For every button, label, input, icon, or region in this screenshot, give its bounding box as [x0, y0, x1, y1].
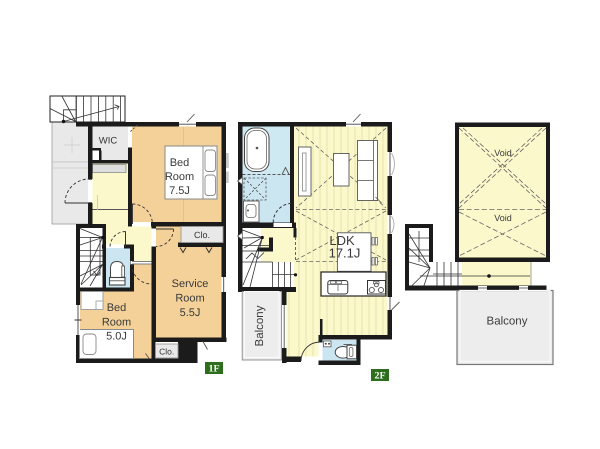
svg-text:Clo.: Clo. [159, 347, 174, 357]
svg-text:Clo.: Clo. [194, 230, 210, 240]
svg-text:5.5J: 5.5J [180, 307, 201, 319]
svg-text:17.1J: 17.1J [329, 246, 361, 261]
svg-text:WIC: WIC [99, 136, 118, 147]
svg-text:5.0J: 5.0J [106, 331, 127, 343]
svg-text:Service: Service [172, 278, 209, 290]
svg-text:7.5J: 7.5J [169, 185, 190, 197]
svg-text:2F: 2F [374, 371, 385, 382]
svg-text:Room: Room [102, 317, 131, 329]
svg-text:Room: Room [175, 293, 204, 305]
svg-text:Balcony: Balcony [487, 316, 528, 328]
svg-text:Bed: Bed [170, 157, 190, 169]
svg-text:Void: Void [494, 148, 512, 158]
svg-text:Void: Void [494, 213, 512, 223]
svg-text:1F: 1F [208, 364, 219, 375]
svg-text:Room: Room [165, 171, 194, 183]
svg-text:Balcony: Balcony [254, 305, 266, 346]
svg-text:Bed: Bed [107, 302, 127, 314]
